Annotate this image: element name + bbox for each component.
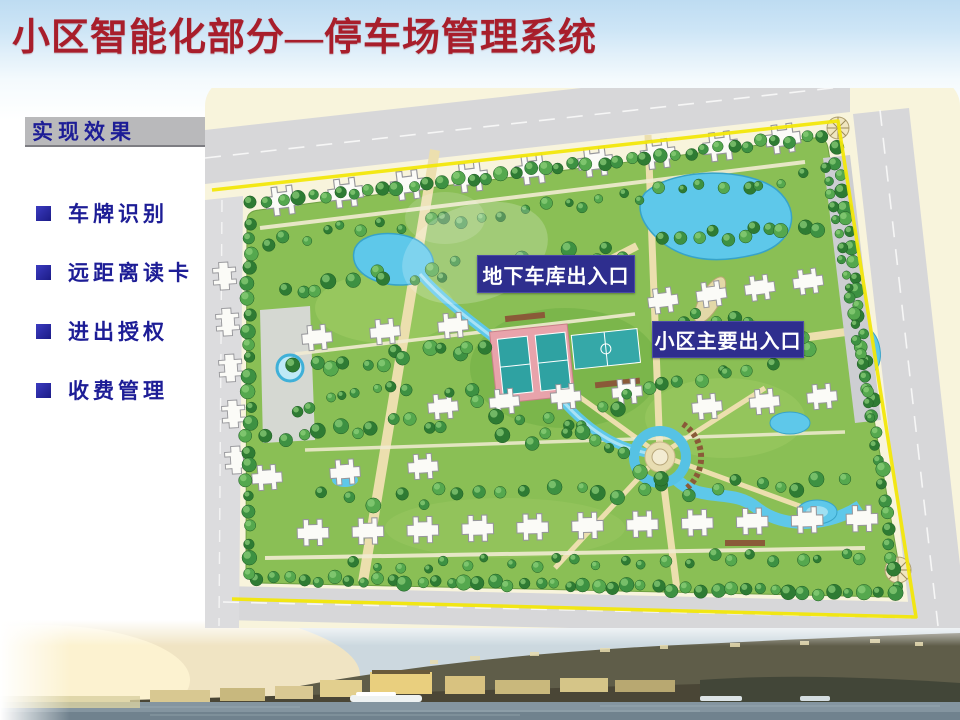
map-label-main-entrance: 小区主要出入口 xyxy=(652,321,804,358)
site-plan-map: 地下车库出入口 小区主要出入口 xyxy=(205,88,960,628)
list-item-label: 收费管理 xyxy=(68,375,168,405)
footer-photo xyxy=(0,620,960,720)
map-label-garage-entrance: 地下车库出入口 xyxy=(477,255,635,293)
list-item-label: 车牌识别 xyxy=(68,198,168,228)
site-plan-svg xyxy=(205,88,960,628)
sidebar-header-label: 实现效果 xyxy=(32,120,136,144)
basketball-court xyxy=(571,329,640,370)
slide-title: 小区智能化部分—停车场管理系统 xyxy=(12,6,597,61)
sidebar-header: 实现效果 xyxy=(25,117,219,147)
list-item-label: 远距离读卡 xyxy=(68,257,193,287)
presentation-slide: 小区智能化部分—停车场管理系统 实现效果 车牌识别 远距离读卡 进出授权 收费管… xyxy=(0,0,960,720)
bullet-icon xyxy=(36,206,51,221)
boat-icon xyxy=(350,695,422,702)
bullet-icon xyxy=(36,324,51,339)
list-item-label: 进出授权 xyxy=(68,316,168,346)
bullet-icon xyxy=(36,383,51,398)
photo-left-fade xyxy=(0,620,70,720)
bullet-icon xyxy=(36,265,51,280)
